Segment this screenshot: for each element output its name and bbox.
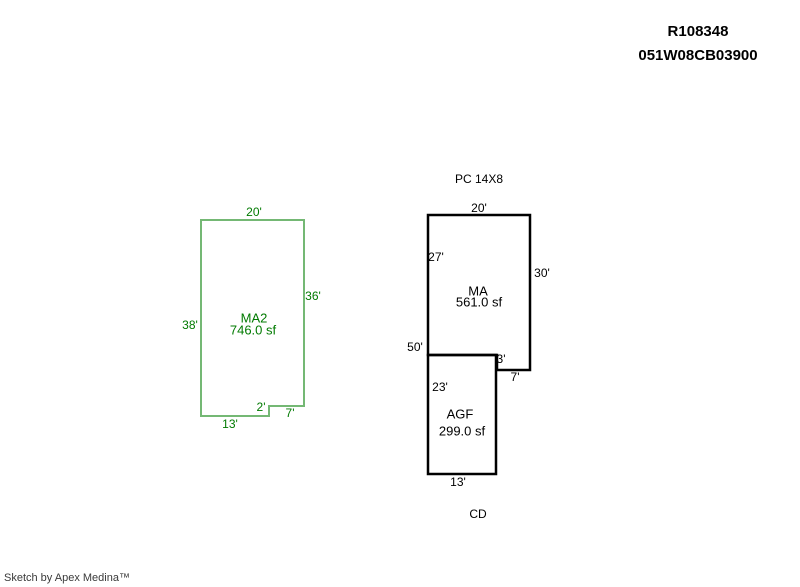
ma-dim-left: 27' <box>428 251 444 263</box>
ma-dim-right: 30' <box>534 267 550 279</box>
ma2-area: 746.0 sf <box>230 324 276 337</box>
agf-name: AGF <box>447 408 474 421</box>
sketch-outline-layer <box>0 0 800 587</box>
ma-dim-top: 20' <box>471 202 487 214</box>
ma2-dim-right: 36' <box>305 290 321 302</box>
ma-dim-step: 3' <box>497 353 506 365</box>
ma-dim-left-total: 50' <box>407 341 423 353</box>
ma-area: 561.0 sf <box>456 296 502 309</box>
ma-dim-bottom-right: 7' <box>511 371 520 383</box>
agf-dim-left: 23' <box>432 381 448 393</box>
ma2-dim-top: 20' <box>246 206 262 218</box>
sketch-page: R108348 051W08CB03900 20' 36' 38' MA2 74… <box>0 0 800 587</box>
annotation-pc: PC 14X8 <box>455 173 503 185</box>
agf-area: 299.0 sf <box>439 425 485 438</box>
sketch-credit: Sketch by Apex Medina™ <box>4 572 130 584</box>
agf-dim-bottom: 13' <box>450 476 466 488</box>
ma2-dim-step: 2' <box>257 401 266 413</box>
ma2-dim-bottom-right: 7' <box>286 407 295 419</box>
ma2-dim-bottom: 13' <box>222 418 238 430</box>
annotation-cd: CD <box>469 508 486 520</box>
ma2-dim-left: 38' <box>182 319 198 331</box>
